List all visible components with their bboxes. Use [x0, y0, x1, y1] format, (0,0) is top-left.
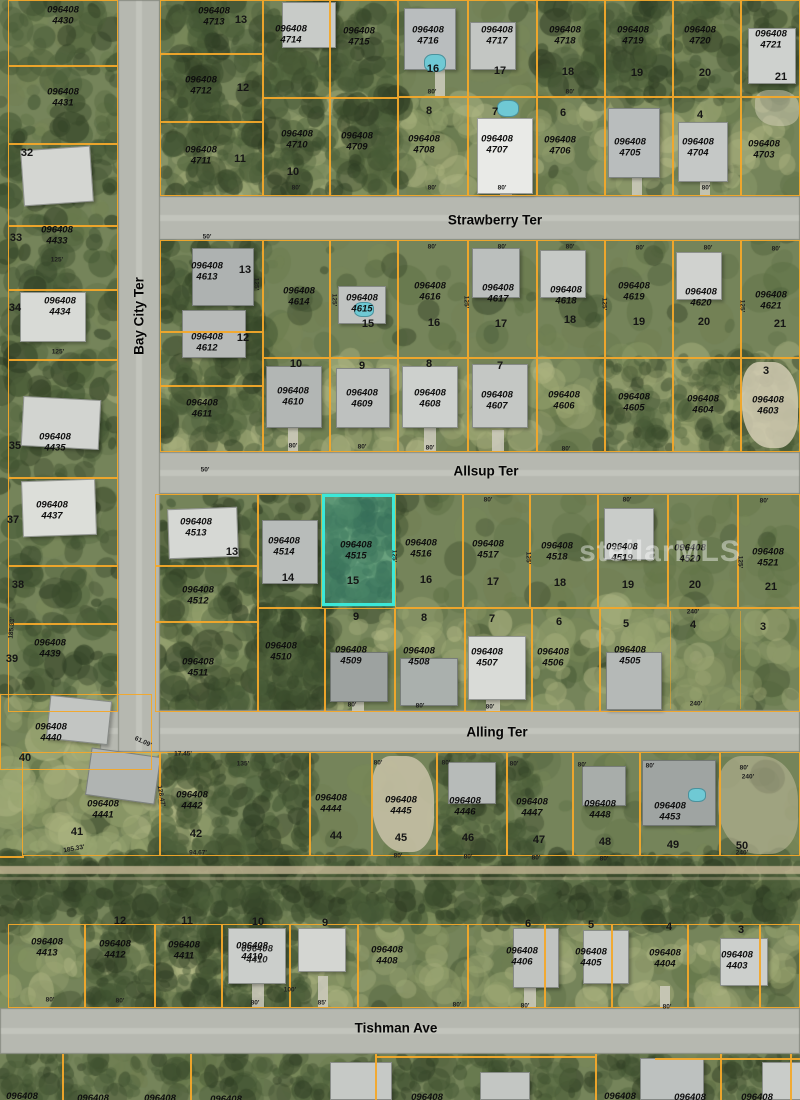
parcel-id-label: 0964084618 — [550, 285, 582, 306]
parcel-id-number: 4703 — [748, 150, 780, 161]
parcel-id-number: 4453 — [654, 812, 686, 823]
dimension-label: 80' — [663, 1004, 672, 1011]
lot-number-label: 4 — [697, 109, 703, 121]
dimension-label: 80' — [486, 704, 495, 711]
dimension-label: 80' — [566, 244, 575, 251]
parcel-id-label: 0964084718 — [549, 25, 581, 46]
parcel-id-number: 4716 — [412, 36, 444, 47]
parcel-id-number: 4446 — [449, 807, 481, 818]
street-name-label: Strawberry Ter — [448, 213, 542, 228]
parcel-id-label: 0964084513 — [180, 517, 212, 538]
dimension-label: 240' — [736, 850, 748, 857]
parcel-id-label: 0964084408 — [371, 945, 403, 966]
lot-number-label: 7 — [492, 106, 498, 118]
parcel — [8, 566, 118, 624]
parcel-id-number: 4431 — [47, 98, 79, 109]
lot-number-label: 17 — [495, 318, 507, 330]
parcel-id-number: 4707 — [481, 145, 513, 156]
parcel-id-label: 0964084515 — [340, 540, 372, 561]
lot-number-label: 9 — [359, 360, 365, 372]
dimension-label: 80' — [289, 443, 298, 450]
parcel-id-number: 4606 — [548, 401, 580, 412]
parcel-id-label: 0964084611 — [186, 398, 218, 419]
lot-number-label: 32 — [21, 147, 33, 159]
parcel-id-number: 4411 — [168, 951, 200, 962]
parcel — [720, 752, 800, 856]
lot-number-label: 45 — [395, 832, 407, 844]
parcel-id-number: 4412 — [99, 950, 131, 961]
lot-number-label: 39 — [6, 653, 18, 665]
parcel-id-label: 0964084613 — [191, 261, 223, 282]
parcel-id-number: 4435 — [39, 443, 71, 454]
clipped-parcel-id-label: 096408 — [144, 1093, 176, 1100]
parcel-id-label: 0964084707 — [481, 134, 513, 155]
parcel-id-label: 0964084711 — [185, 145, 217, 166]
parcel — [605, 0, 673, 97]
parcel-id-number: 4508 — [403, 657, 435, 668]
parcel-id-label: 0964084610 — [277, 386, 309, 407]
lot-number-label: 21 — [765, 581, 777, 593]
dimension-label: 80' — [292, 185, 301, 192]
dimension-label: 80' — [646, 763, 655, 770]
parcel-id-label: 0964084612 — [191, 332, 223, 353]
dimension-label: 240' — [687, 609, 699, 616]
parcel-id-number: 4715 — [343, 37, 375, 48]
dimension-label: 125' — [601, 298, 608, 310]
parcel-id-label: 0964084405 — [575, 947, 607, 968]
parcel — [673, 0, 741, 97]
parcel-id-label: 0964084447 — [516, 797, 548, 818]
parcel-id-label: 0964084453 — [654, 801, 686, 822]
lot-number-label: 19 — [633, 316, 645, 328]
parcel-id-number: 4620 — [685, 298, 717, 309]
boundary-line — [595, 1054, 597, 1100]
parcel-id-number: 4711 — [185, 156, 217, 167]
lot-number-label: 16 — [420, 574, 432, 586]
lot-number-label: 4 — [666, 921, 672, 933]
parcel-id-label: 0964084411 — [168, 940, 200, 961]
dimension-label: 80' — [566, 89, 575, 96]
lot-number-label: 5 — [588, 919, 594, 931]
parcel-id-label: 0964084617 — [482, 283, 514, 304]
parcel-id-number: 4619 — [618, 292, 650, 303]
lot-number-label: 11 — [234, 153, 246, 165]
dimension-label: 80' — [484, 497, 493, 504]
parcel — [290, 924, 358, 1008]
parcel-id-label: 0964084708 — [408, 134, 440, 155]
clipped-parcel-id-label: 096408 — [6, 1091, 38, 1100]
parcel-id-number: 4710 — [281, 140, 313, 151]
parcel-id-label: 0964084517 — [472, 539, 504, 560]
parcel-id-label: 0964084518 — [541, 541, 573, 562]
parcel-id-number: 4608 — [414, 399, 446, 410]
dimension-label: 50' — [201, 467, 210, 474]
parcel-id-label: 0964084615 — [346, 293, 378, 314]
lot-number-label: 4 — [690, 619, 696, 631]
parcel-id-label: 0964084710 — [281, 129, 313, 150]
dimension-label: 80' — [532, 855, 541, 862]
parcel-id-number: 4709 — [341, 142, 373, 153]
parcel-id-label: 0964084510 — [265, 641, 297, 662]
dimension-label: 80' — [521, 1003, 530, 1010]
parcel — [222, 924, 290, 1008]
dimension-label: 80' — [374, 760, 383, 767]
parcel-id-label: 0964084448 — [584, 799, 616, 820]
parcel-id-number: 4413 — [31, 948, 63, 959]
house — [480, 1072, 530, 1100]
lot-number-label: 40 — [19, 752, 31, 764]
lot-number-label: 7 — [497, 360, 503, 372]
parcel-id-number: 4718 — [549, 36, 581, 47]
lot-number-label: 21 — [774, 318, 786, 330]
lot-number-label: 12 — [114, 915, 126, 927]
parcel-id-number: 4516 — [405, 549, 437, 560]
parcel — [155, 924, 222, 1008]
parcel-id-number: 4517 — [472, 550, 504, 561]
dimension-label: 125' — [525, 552, 532, 564]
dimension-label: 80' — [562, 446, 571, 453]
parcel-id-number: 4609 — [346, 399, 378, 410]
parcel-id-label: 0964084512 — [182, 585, 214, 606]
dimension-label: 125' — [331, 294, 338, 306]
parcel-id-label: 0964084430 — [47, 5, 79, 26]
dimension-label: 125' — [391, 550, 398, 562]
dimension-label: 240' — [690, 701, 702, 708]
lot-number-label: 41 — [71, 826, 83, 838]
dimension-label: 80' — [510, 761, 519, 768]
parcel-id-number: 4717 — [481, 36, 513, 47]
parcel — [85, 924, 155, 1008]
parcel-id-label: 0964084514 — [268, 536, 300, 557]
parcel-inner-boundary — [670, 611, 671, 709]
dimension-label: 125' — [253, 278, 260, 290]
parcel-id-label: 0964084706 — [544, 135, 576, 156]
parcel — [537, 0, 605, 97]
dimension-label: 100' — [284, 987, 296, 994]
parcel-id-label: 0964084403 — [721, 950, 753, 971]
lot-number-label: 33 — [10, 232, 22, 244]
parcel-id-label: 0964084717 — [481, 25, 513, 46]
lot-number-label: 7 — [489, 613, 495, 625]
parcel-id-label: 0964084505 — [614, 645, 646, 666]
dimension-label: 17.45' — [174, 751, 192, 758]
lot-number-label: 48 — [599, 836, 611, 848]
lot-number-label: 42 — [190, 828, 202, 840]
parcel-id-number: 4434 — [44, 307, 76, 318]
parcel-id-number: 4442 — [176, 801, 208, 812]
lot-number-label: 15 — [347, 575, 359, 587]
parcel-id-number: 4612 — [191, 343, 223, 354]
dimension-label: 125' — [51, 257, 63, 264]
parcel-id-number: 4445 — [385, 806, 417, 817]
dimension-label: 80' — [740, 765, 749, 772]
parcel-id-label: 0964084445 — [385, 795, 417, 816]
lot-number-label: 8 — [426, 105, 432, 117]
parcel-id-label: 0964084431 — [47, 87, 79, 108]
parcel-id-number: 4433 — [41, 236, 73, 247]
lot-number-label: 19 — [622, 579, 634, 591]
parcel-id-label: 0964084605 — [618, 392, 650, 413]
parcel-id-label: 0964084712 — [185, 75, 217, 96]
dimension-label: 80' — [578, 762, 587, 769]
dimension-label: 94.67' — [189, 850, 207, 857]
parcel-id-number: 4621 — [755, 301, 787, 312]
parcel-id-number: 4408 — [371, 956, 403, 967]
dimension-label: 80' — [394, 853, 403, 860]
parcel-id-label: 0964084709 — [341, 131, 373, 152]
lot-number-label: 3 — [760, 621, 766, 633]
parcel-id-label: 0964084721 — [755, 29, 787, 50]
boundary-line — [375, 1056, 595, 1058]
parcel-id-number: 4512 — [182, 596, 214, 607]
dimension-label: 80' — [116, 998, 125, 1005]
parcel-id-label: 0964084516 — [405, 538, 437, 559]
parcel-id-label: 0964084506 — [537, 647, 569, 668]
parcel-id-number: 4603 — [752, 406, 784, 417]
parcel-id-label: 0964084442 — [176, 790, 208, 811]
lot-number-label: 10 — [287, 166, 299, 178]
parcel-id-number: 4712 — [185, 86, 217, 97]
parcel-id-label: 0964084614 — [283, 286, 315, 307]
parcel-id-label: 0964084703 — [748, 139, 780, 160]
dimension-label: 80' — [428, 185, 437, 192]
lot-number-label: 10 — [290, 358, 302, 370]
parcel-id-label: 0964084603 — [752, 395, 784, 416]
parcel-id-number: 4719 — [617, 36, 649, 47]
parcel-id-number: 4616 — [414, 292, 446, 303]
parcel-id-number: 4613 — [191, 272, 223, 283]
parcel-id-number: 4720 — [684, 36, 716, 47]
parcel-id-number: 4617 — [482, 294, 514, 305]
clipped-parcel-id-label: 096408 — [77, 1093, 109, 1100]
parcel — [760, 924, 800, 1008]
dimension-label: 85' — [318, 1000, 327, 1007]
parcel-id-label: 0964084440 — [35, 722, 67, 743]
parcel-id-number: 4708 — [408, 145, 440, 156]
lot-number-label: 21 — [775, 71, 787, 83]
dimension-label: 125' — [52, 349, 64, 356]
parcel-id-label: 0964084716 — [412, 25, 444, 46]
map-watermark: stellarMLS — [579, 535, 741, 569]
parcel-id-number: 4405 — [575, 958, 607, 969]
dimension-label: 80' — [428, 244, 437, 251]
lot-number-label: 13 — [226, 546, 238, 558]
parcel-id-number: 4404 — [649, 959, 681, 970]
parcel-id-label: 0964084609 — [346, 388, 378, 409]
parcel-id-number: 4507 — [471, 658, 503, 669]
parcel-id-number: 4706 — [544, 146, 576, 157]
house — [330, 1062, 392, 1100]
parcel-id-label: 0964084619 — [618, 281, 650, 302]
lot-number-label: 15 — [362, 318, 374, 330]
lot-number-label: 6 — [556, 616, 562, 628]
dimension-label: 80' — [498, 244, 507, 251]
lot-number-label: 13 — [235, 14, 247, 26]
dimension-label: 80' — [428, 89, 437, 96]
lot-number-label: 37 — [7, 514, 19, 526]
dimension-label: 240' — [742, 774, 754, 781]
parcel-id-label: 0964084410 — [241, 944, 273, 965]
lot-number-label: 5 — [623, 618, 629, 630]
parcel-id-label: 0964084412 — [99, 939, 131, 960]
parcel-id-number: 4510 — [265, 652, 297, 663]
parcel-id-label: 0964084511 — [182, 657, 214, 678]
parcel-id-label: 0964084608 — [414, 388, 446, 409]
parcel-id-label: 0964084406 — [506, 946, 538, 967]
parcel-id-label: 0964084720 — [684, 25, 716, 46]
parcel-id-number: 4506 — [537, 658, 569, 669]
parcel-id-label: 0964084620 — [685, 287, 717, 308]
lot-number-label: 6 — [560, 107, 566, 119]
parcel-id-number: 4714 — [275, 35, 307, 46]
parcel-id-number: 4437 — [36, 511, 68, 522]
parcel-id-number: 4610 — [277, 397, 309, 408]
parcel-id-label: 0964084616 — [414, 281, 446, 302]
parcel-id-number: 4513 — [180, 528, 212, 539]
parcel — [468, 0, 537, 97]
lot-number-label: 38 — [12, 579, 24, 591]
parcel-inner-boundary — [740, 611, 741, 709]
clipped-parcel-id-label: 096408 — [411, 1092, 443, 1100]
parcel-id-label: 0964084521 — [752, 547, 784, 568]
dimension-label: 80' — [704, 245, 713, 252]
lot-number-label: 20 — [699, 67, 711, 79]
parcel-id-label: 0964084508 — [403, 646, 435, 667]
parcel-id-number: 4514 — [268, 547, 300, 558]
mls-aerial-parcel-map: 0964084430096408443132096408443333096408… — [0, 0, 800, 1100]
lot-number-label: 16 — [427, 63, 439, 75]
dimension-label: 80' — [348, 702, 357, 709]
parcel-id-number: 4614 — [283, 297, 315, 308]
dimension-label: 50' — [203, 234, 212, 241]
dimension-label: 80' — [442, 760, 451, 767]
boundary-line — [790, 1054, 792, 1100]
parcel-id-number: 4521 — [752, 558, 784, 569]
dimension-label: 80' — [46, 997, 55, 1004]
lot-number-label: 18 — [562, 66, 574, 78]
parcel-id-label: 0964084434 — [44, 296, 76, 317]
parcel-id-label: 0964084715 — [343, 26, 375, 47]
street-name-label: Tishman Ave — [355, 1021, 438, 1036]
parcel-id-number: 4615 — [346, 304, 378, 315]
lot-number-label: 34 — [9, 302, 21, 314]
parcel — [8, 360, 118, 478]
lot-number-label: 12 — [237, 82, 249, 94]
lot-number-label: 13 — [239, 264, 251, 276]
lot-number-label: 8 — [426, 358, 432, 370]
parcel-id-label: 0964084705 — [614, 137, 646, 158]
dimension-label: 80' — [251, 1000, 260, 1007]
lot-number-label: 35 — [9, 440, 21, 452]
boundary-line — [190, 1054, 192, 1100]
street-name-label: Allsup Ter — [453, 464, 518, 479]
lot-number-label: 3 — [738, 924, 744, 936]
boundary-line — [0, 856, 24, 858]
parcel — [330, 0, 398, 98]
parcel-id-label: 0964084446 — [449, 796, 481, 817]
dimension-label: 80' — [772, 246, 781, 253]
dimension-label: 80' — [358, 444, 367, 451]
clipped-parcel-id-label: 096408 — [741, 1092, 773, 1100]
dimension-label: 135' — [237, 761, 249, 768]
parcel-id-label: 0964084509 — [335, 645, 367, 666]
lot-number-label: 46 — [462, 832, 474, 844]
parcel-id-label: 0964084444 — [315, 793, 347, 814]
street-name-label: Alling Ter — [466, 725, 527, 740]
dimension-label: 80' — [702, 185, 711, 192]
parcel-id-label: 0964084413 — [31, 937, 63, 958]
dimension-label: 125' — [463, 296, 470, 308]
lot-number-label: 12 — [237, 332, 249, 344]
dimension-label: 80' — [416, 703, 425, 710]
lot-number-label: 11 — [181, 915, 193, 927]
lot-number-label: 19 — [631, 67, 643, 79]
parcel-id-number: 4515 — [340, 551, 372, 562]
parcel-id-label: 0964084433 — [41, 225, 73, 246]
parcel-id-number: 4439 — [34, 649, 66, 660]
clipped-parcel-id-label: 096408 — [604, 1091, 636, 1100]
parcel-id-label: 0964084404 — [649, 948, 681, 969]
dimension-label: 80' — [623, 497, 632, 504]
parcel-id-label: 0964084441 — [87, 799, 119, 820]
parcel-id-number: 4618 — [550, 296, 582, 307]
parcel-id-number: 4721 — [755, 40, 787, 51]
parcel — [160, 240, 263, 332]
parcel-id-number: 4509 — [335, 656, 367, 667]
lot-number-label: 9 — [353, 611, 359, 623]
parcel — [263, 0, 330, 98]
lot-number-label: 10 — [252, 916, 264, 928]
dimension-label: 80' — [426, 445, 435, 452]
parcel-id-label: 0964084713 — [198, 6, 230, 27]
parcel-id-number: 4447 — [516, 808, 548, 819]
parcel-id-number: 4406 — [506, 957, 538, 968]
parcel-id-label: 0964084437 — [36, 500, 68, 521]
lot-number-label: 3 — [763, 365, 769, 377]
boundary-line — [62, 1054, 64, 1100]
clipped-parcel-id-label: 096408 — [210, 1094, 242, 1100]
lot-number-label: 14 — [282, 572, 294, 584]
lot-number-label: 49 — [667, 839, 679, 851]
parcel-id-label: 0964084435 — [39, 432, 71, 453]
parcel-id-number: 4410 — [241, 955, 273, 966]
dimension-label: 80' — [453, 1002, 462, 1009]
parcel-id-label: 0964084607 — [481, 390, 513, 411]
dimension-label: 80' — [760, 498, 769, 505]
parcel-id-label: 0964084604 — [687, 394, 719, 415]
parcel-id-number: 4403 — [721, 961, 753, 972]
parcel-id-number: 4430 — [47, 16, 79, 27]
parcel-id-number: 4605 — [618, 403, 650, 414]
lot-number-label: 16 — [428, 317, 440, 329]
parcel-id-number: 4440 — [35, 733, 67, 744]
parcel-id-label: 0964084606 — [548, 390, 580, 411]
parcel-id-number: 4705 — [614, 148, 646, 159]
parcel-id-label: 0964084621 — [755, 290, 787, 311]
parcel-id-number: 4518 — [541, 552, 573, 563]
dimension-label: 80' — [600, 856, 609, 863]
parcel — [398, 0, 468, 97]
lot-number-label: 6 — [525, 918, 531, 930]
street-name-label: Bay City Ter — [132, 277, 147, 355]
parcel-id-label: 0964084714 — [275, 24, 307, 45]
parcel-id-label: 0964084439 — [34, 638, 66, 659]
boundary-line — [375, 1054, 377, 1100]
lot-number-label: 47 — [533, 834, 545, 846]
lot-number-label: 8 — [421, 612, 427, 624]
lot-number-label: 17 — [494, 65, 506, 77]
boundary-line — [720, 1054, 722, 1100]
